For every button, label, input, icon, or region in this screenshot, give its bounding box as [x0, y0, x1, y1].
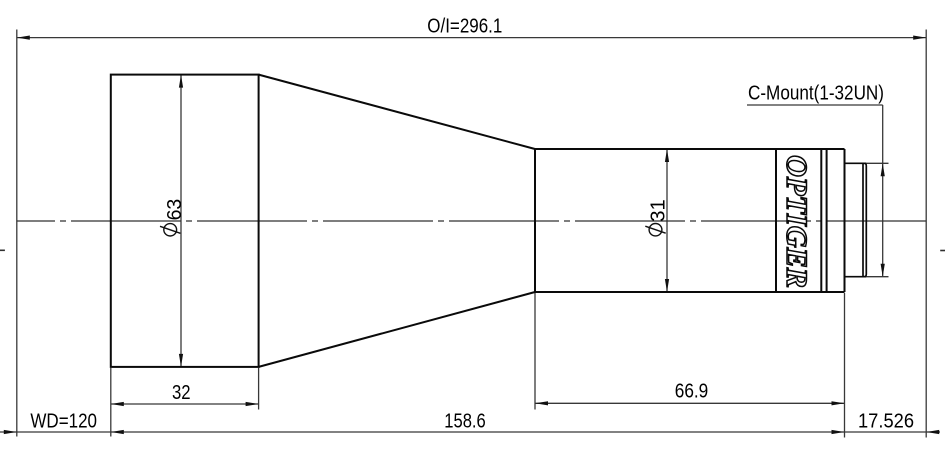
svg-text:WD=120: WD=120: [30, 410, 97, 433]
svg-text:17.526: 17.526: [858, 410, 914, 433]
svg-text:66.9: 66.9: [675, 380, 709, 403]
svg-text:31: 31: [646, 199, 669, 222]
svg-text:C-Mount(1-32UN): C-Mount(1-32UN): [748, 82, 884, 105]
svg-text:158.6: 158.6: [444, 410, 486, 433]
svg-text:63: 63: [163, 199, 186, 221]
svg-text:OPTIGER: OPTIGER: [780, 155, 813, 288]
svg-text:O/I=296.1: O/I=296.1: [427, 15, 502, 38]
svg-text:32: 32: [172, 381, 191, 404]
